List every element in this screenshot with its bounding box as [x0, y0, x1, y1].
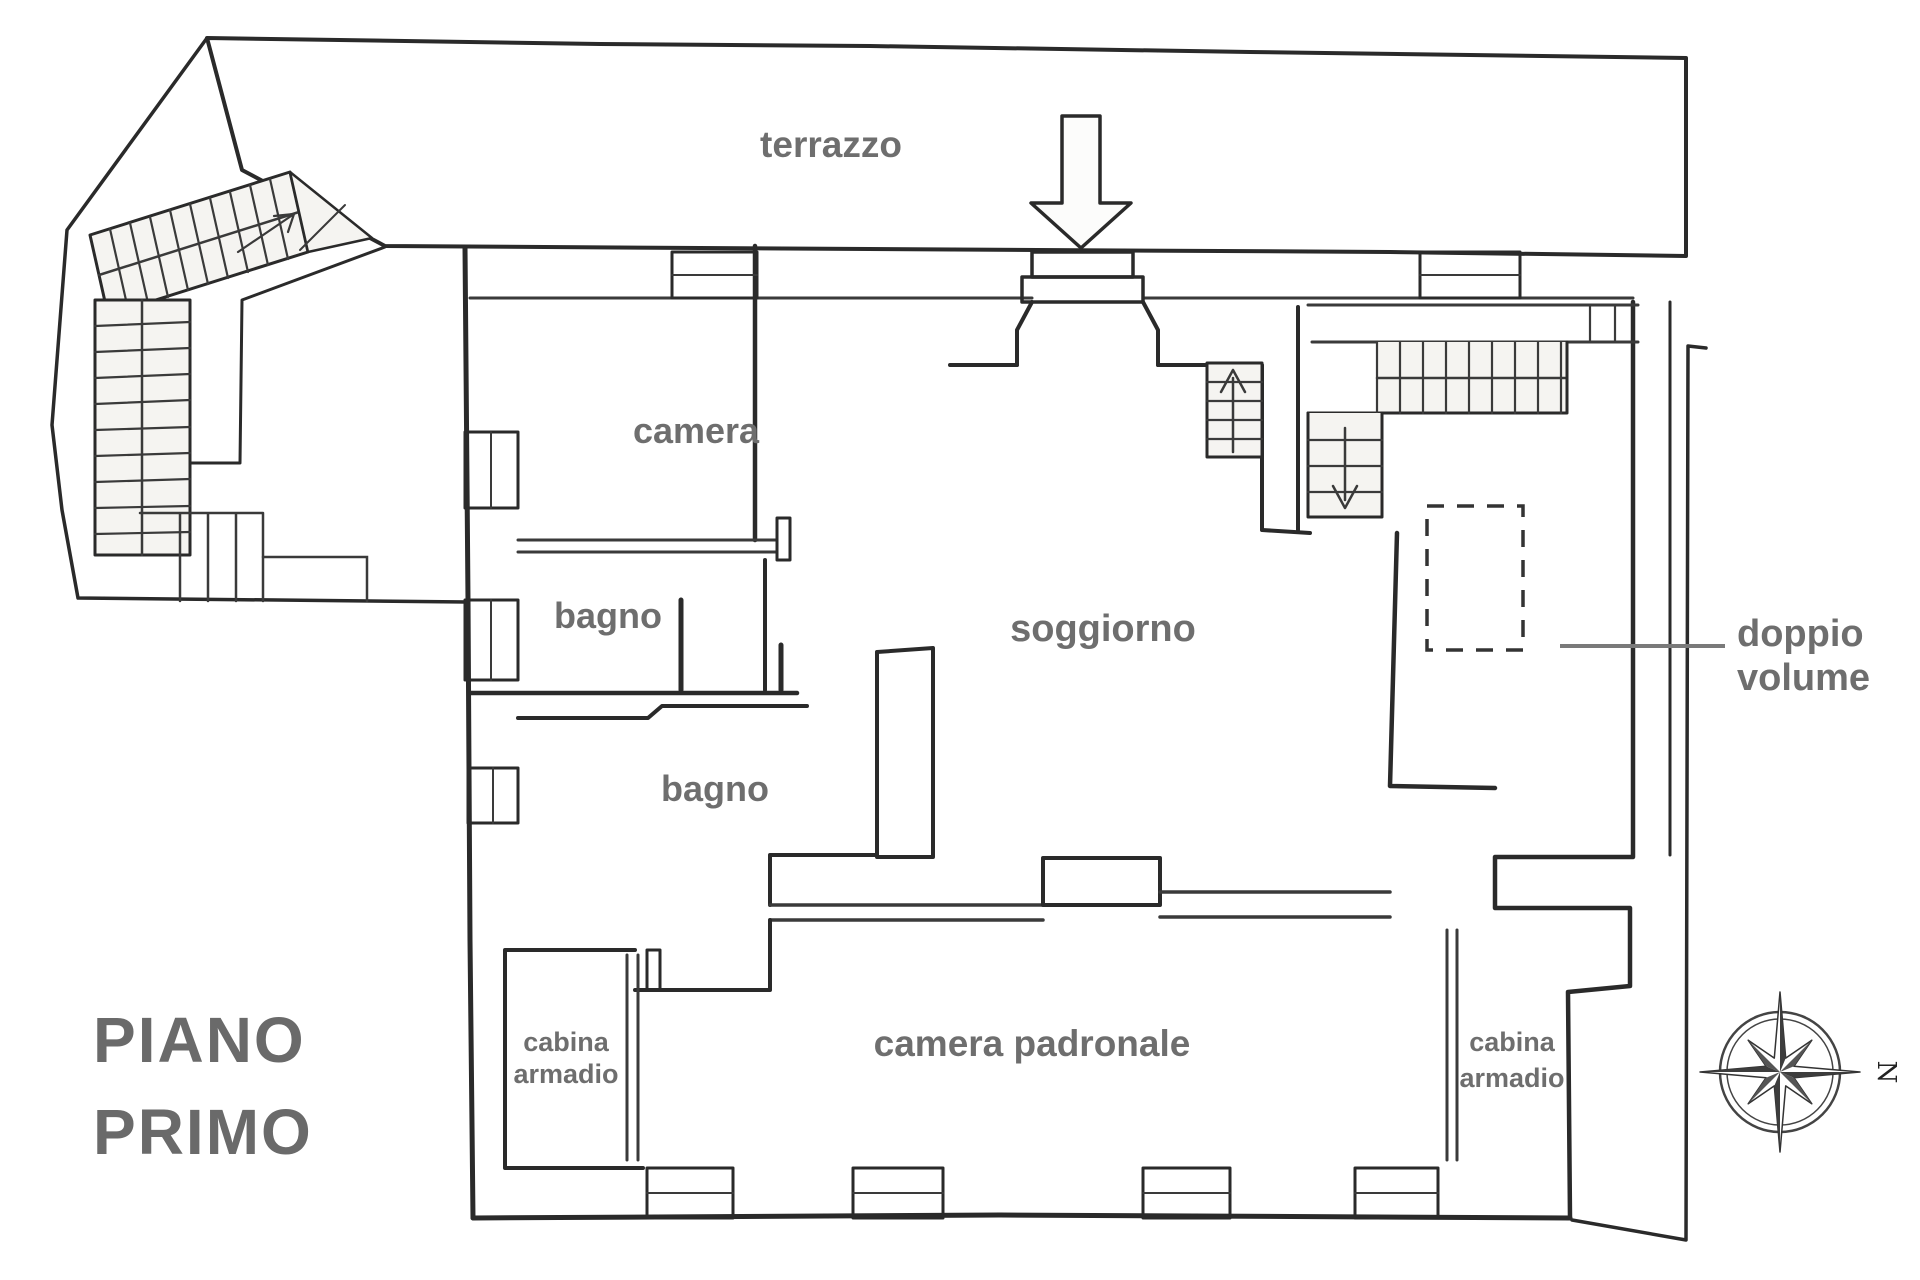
main-internal-staircase — [1308, 305, 1638, 517]
compass-north-letter: N — [1871, 1061, 1901, 1084]
entrance-arrow-icon — [1031, 116, 1131, 248]
compass-rose-icon: N — [1700, 992, 1901, 1152]
doppio-volume-annotation: doppio volume — [1427, 506, 1870, 699]
label-soggiorno: soggiorno — [1010, 608, 1196, 650]
external-staircase — [90, 172, 372, 601]
label-cabina-armadio-left-line2: armadio — [513, 1059, 618, 1089]
label-cabina-armadio-left-line1: cabina — [523, 1027, 610, 1057]
label-cabina-armadio-right-line1: cabina — [1469, 1027, 1556, 1057]
terrace-outline — [207, 38, 1686, 256]
label-bagno-2: bagno — [661, 768, 769, 809]
floor-plan-drawing: doppio volume terrazzo camera bagno bagn… — [0, 0, 1920, 1280]
label-doppio-volume-line2: volume — [1737, 657, 1870, 699]
windows — [465, 252, 1520, 1218]
doppio-volume-dashed-area — [1427, 506, 1523, 650]
label-doppio-volume-line1: doppio — [1737, 613, 1864, 655]
floor-title-line1: PIANO — [93, 1004, 306, 1076]
label-terrazzo: terrazzo — [760, 124, 902, 165]
floor-title: PIANO PRIMO — [93, 1004, 313, 1168]
label-camera: camera — [633, 410, 760, 451]
label-bagno-1: bagno — [554, 595, 662, 636]
entrance — [1022, 116, 1143, 302]
small-internal-staircase — [1207, 363, 1262, 457]
floor-plan-page: doppio volume terrazzo camera bagno bagn… — [0, 0, 1920, 1280]
label-camera-padronale: camera padronale — [874, 1023, 1191, 1064]
floor-title-line2: PRIMO — [93, 1096, 313, 1168]
label-cabina-armadio-right-line2: armadio — [1459, 1063, 1564, 1093]
